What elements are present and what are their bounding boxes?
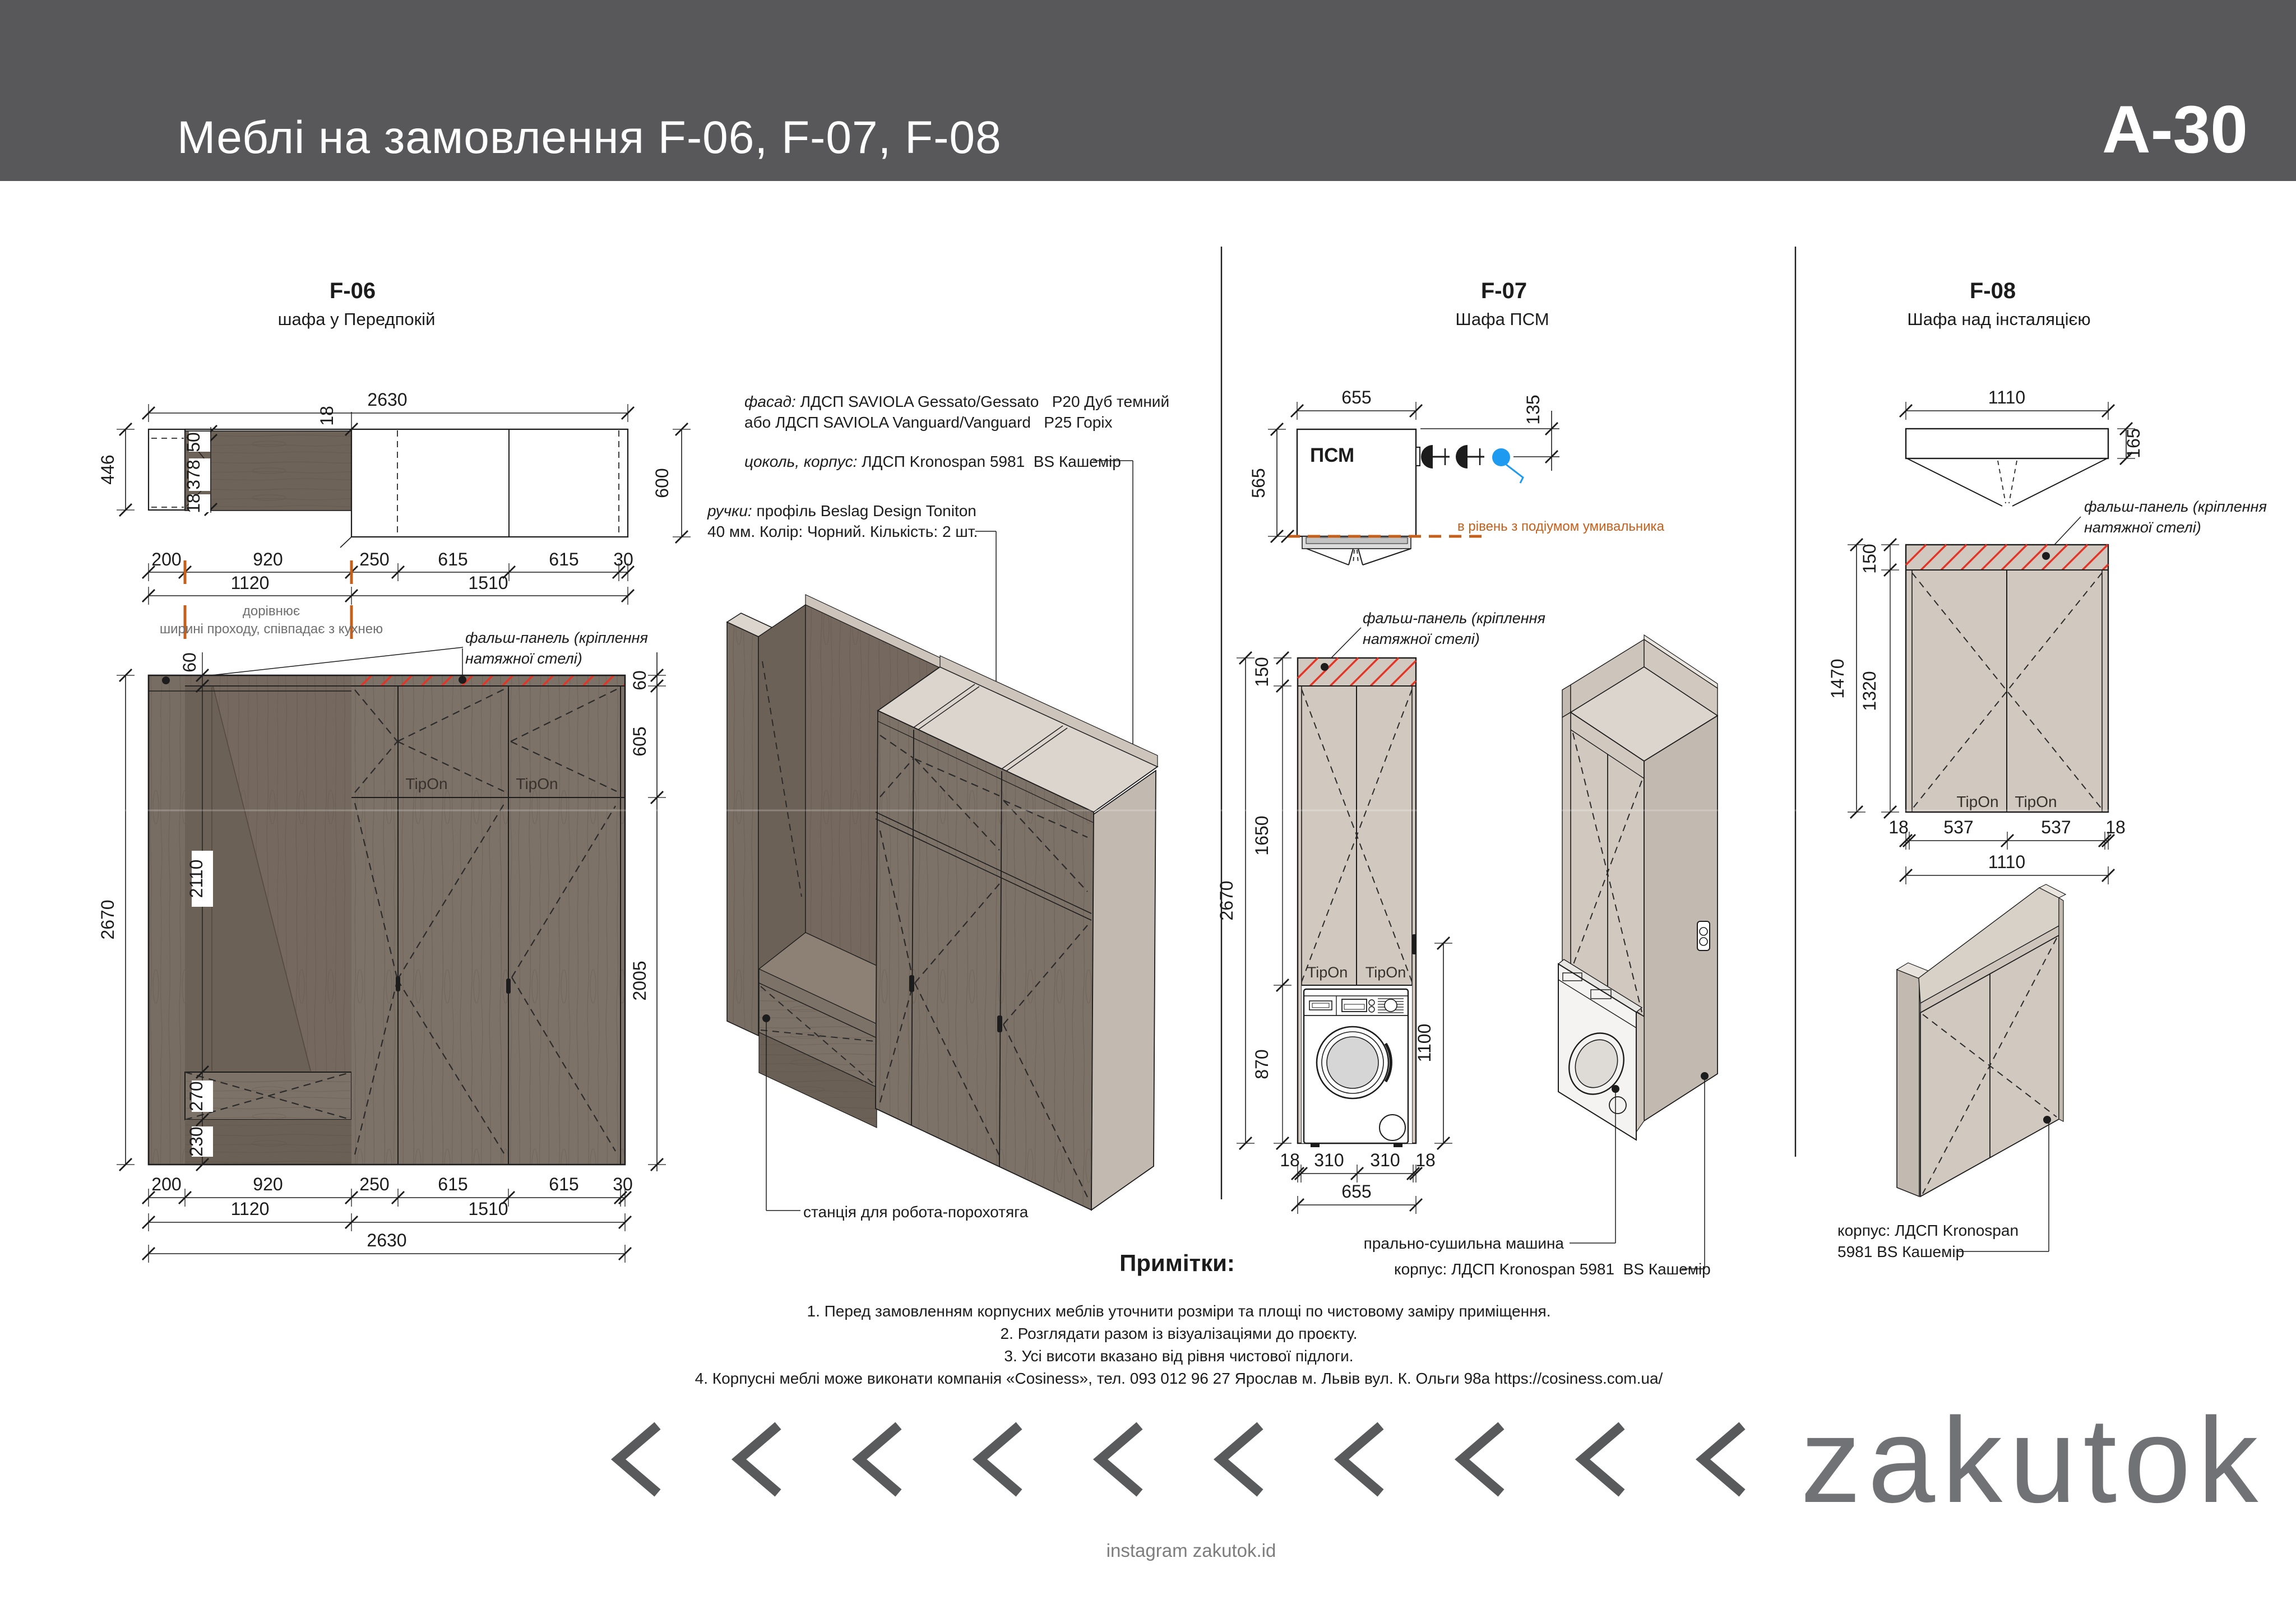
svg-text:537: 537 <box>2041 817 2071 837</box>
svg-text:фасад: ЛДСП SAVIOLA Gessato/Ge: фасад: ЛДСП SAVIOLA Gessato/Gessato P20 … <box>744 393 1169 410</box>
svg-text:655: 655 <box>1341 1181 1371 1202</box>
svg-text:230: 230 <box>186 1126 206 1156</box>
svg-text:30: 30 <box>613 549 633 569</box>
svg-text:60: 60 <box>629 670 650 690</box>
svg-text:200: 200 <box>151 1174 181 1194</box>
svg-text:2630: 2630 <box>367 389 407 410</box>
svg-text:натяжної стелі): натяжної стелі) <box>1363 630 1480 647</box>
svg-text:або ЛДСП SAVIOLA Vanguard/Vang: або ЛДСП SAVIOLA Vanguard/Vanguard P25 Г… <box>744 414 1113 431</box>
svg-text:1510: 1510 <box>468 1199 508 1219</box>
svg-text:TipOn: TipOn <box>1307 964 1348 981</box>
svg-text:600: 600 <box>652 468 672 498</box>
svg-text:фальш-панель (кріплення: фальш-панель (кріплення <box>465 629 648 646</box>
svg-text:50: 50 <box>183 432 203 452</box>
svg-text:корпус: ЛДСП Kronospan: корпус: ЛДСП Kronospan <box>1837 1222 2019 1239</box>
svg-text:TipOn: TipOn <box>516 775 558 792</box>
svg-text:2630: 2630 <box>367 1230 406 1250</box>
svg-text:Меблі на замовлення F-06, F-07: Меблі на замовлення F-06, F-07, F-08 <box>177 112 1002 163</box>
svg-text:instagram zakutok.id: instagram zakutok.id <box>1107 1540 1276 1561</box>
svg-text:165: 165 <box>2123 428 2144 458</box>
svg-text:F-06: F-06 <box>330 279 376 303</box>
svg-text:TipOn: TipOn <box>405 775 447 792</box>
svg-text:18: 18 <box>1415 1150 1436 1170</box>
svg-text:615: 615 <box>438 549 467 569</box>
svg-text:фальш-панель (кріплення: фальш-панель (кріплення <box>2084 498 2267 515</box>
svg-text:615: 615 <box>549 549 578 569</box>
svg-text:270: 270 <box>186 1081 206 1111</box>
svg-text:4. Корпусні меблі може виконат: 4. Корпусні меблі може виконати компанія… <box>695 1370 1663 1387</box>
svg-text:ширині проходу, співпадає з ку: ширині проходу, співпадає з кухнею <box>160 622 383 637</box>
svg-text:F-07: F-07 <box>1481 279 1527 303</box>
svg-text:18: 18 <box>183 493 203 513</box>
svg-text:A-30: A-30 <box>2102 92 2248 167</box>
svg-text:18: 18 <box>317 406 337 426</box>
svg-text:310: 310 <box>1370 1150 1400 1170</box>
svg-text:Шафа ПСМ: Шафа ПСМ <box>1455 309 1549 329</box>
svg-text:2670: 2670 <box>1216 880 1237 920</box>
svg-text:5981 BS Кашемір: 5981 BS Кашемір <box>1837 1243 1964 1260</box>
svg-text:дорівнює: дорівнює <box>243 604 300 619</box>
svg-text:537: 537 <box>1943 817 1973 837</box>
svg-text:1110: 1110 <box>1988 387 2025 407</box>
svg-text:TipOn: TipOn <box>1365 964 1406 981</box>
svg-text:Примітки:: Примітки: <box>1119 1250 1235 1276</box>
svg-text:200: 200 <box>151 549 181 569</box>
svg-text:корпус: ЛДСП Kronospan 5981 B: корпус: ЛДСП Kronospan 5981 BS Кашемір <box>1394 1260 1711 1278</box>
svg-text:2670: 2670 <box>98 899 118 939</box>
svg-text:станція для робота-порохотяга: станція для робота-порохотяга <box>803 1203 1029 1221</box>
svg-text:18: 18 <box>1280 1150 1300 1170</box>
svg-text:446: 446 <box>98 455 118 484</box>
svg-text:фальш-панель (кріплення: фальш-панель (кріплення <box>1363 610 1545 627</box>
svg-text:в рівень з подіумом умивальник: в рівень з подіумом умивальника <box>1457 519 1665 534</box>
svg-text:150: 150 <box>1252 657 1272 687</box>
svg-text:1110: 1110 <box>1988 852 2025 872</box>
svg-text:310: 310 <box>1314 1150 1344 1170</box>
svg-text:1120: 1120 <box>231 1199 270 1219</box>
svg-text:прально-сушильна машина: прально-сушильна машина <box>1364 1235 1564 1252</box>
svg-text:1650: 1650 <box>1252 815 1272 855</box>
svg-text:2005: 2005 <box>629 961 650 1000</box>
svg-text:18: 18 <box>2105 817 2126 837</box>
svg-text:565: 565 <box>1248 468 1269 498</box>
svg-text:135: 135 <box>1523 395 1543 424</box>
svg-text:1120: 1120 <box>231 573 270 593</box>
svg-text:1100: 1100 <box>1414 1024 1434 1063</box>
svg-text:цоколь, корпус: ЛДСП Kronospan: цоколь, корпус: ЛДСП Kronospan 5981 BS К… <box>744 453 1121 470</box>
svg-text:40 мм. Колір: Чорний. Кількіст: 40 мм. Колір: Чорний. Кількість: 2 шт. <box>707 523 978 540</box>
svg-text:378: 378 <box>183 460 203 489</box>
svg-text:30: 30 <box>613 1174 633 1194</box>
svg-text:3. Усі висоти вказано від рівн: 3. Усі висоти вказано від рівня чистової… <box>1004 1347 1353 1365</box>
svg-text:1470: 1470 <box>1827 659 1848 698</box>
svg-text:TipOn: TipOn <box>1956 793 1998 810</box>
svg-text:F-08: F-08 <box>1970 279 2016 303</box>
svg-text:150: 150 <box>1859 544 1880 573</box>
svg-text:870: 870 <box>1252 1049 1272 1079</box>
svg-text:250: 250 <box>359 549 389 569</box>
svg-text:2110: 2110 <box>186 860 206 898</box>
svg-text:натяжної стелі): натяжної стелі) <box>465 650 582 667</box>
svg-text:250: 250 <box>359 1174 389 1194</box>
svg-text:Шафа над інсталяцією: Шафа над інсталяцією <box>1907 309 2090 329</box>
svg-text:2. Розглядати разом із візуалі: 2. Розглядати разом із візуалізаціями до… <box>1001 1325 1358 1342</box>
svg-text:zakutok: zakutok <box>1800 1392 2265 1528</box>
svg-text:TipOn: TipOn <box>2015 793 2057 810</box>
svg-text:шафа у Передпокій: шафа у Передпокій <box>278 309 436 329</box>
svg-text:1. Перед замовленням корпусних: 1. Перед замовленням корпусних меблів ут… <box>807 1302 1551 1320</box>
svg-text:605: 605 <box>629 726 650 756</box>
svg-text:655: 655 <box>1341 387 1371 407</box>
svg-text:натяжної стелі): натяжної стелі) <box>2084 519 2201 536</box>
svg-text:615: 615 <box>549 1174 578 1194</box>
svg-text:1510: 1510 <box>468 573 508 593</box>
svg-text:ПСМ: ПСМ <box>1310 444 1354 466</box>
svg-text:18: 18 <box>1888 817 1909 837</box>
svg-text:615: 615 <box>438 1174 467 1194</box>
svg-text:920: 920 <box>253 1174 283 1194</box>
svg-text:920: 920 <box>253 549 283 569</box>
svg-text:ручки: профіль Beslag Design T: ручки: профіль Beslag Design Toniton <box>707 502 976 520</box>
svg-text:1320: 1320 <box>1859 671 1880 711</box>
svg-text:60: 60 <box>179 652 200 673</box>
